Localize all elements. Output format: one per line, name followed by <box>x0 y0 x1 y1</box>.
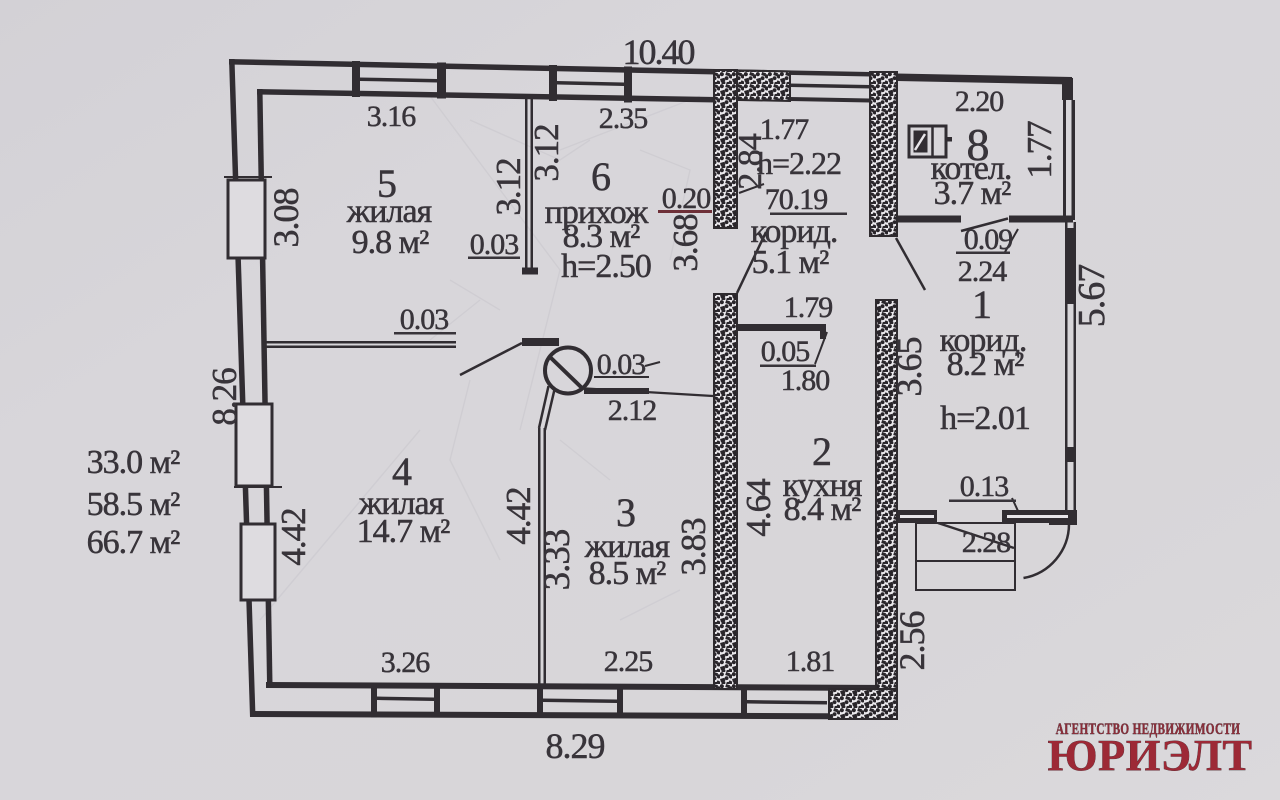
svg-text:58.5 м²: 58.5 м² <box>87 486 181 523</box>
svg-text:0.13: 0.13 <box>960 470 1009 503</box>
svg-text:4.42: 4.42 <box>274 508 313 565</box>
svg-text:3.16: 3.16 <box>367 100 417 133</box>
svg-text:8.5 м²: 8.5 м² <box>589 555 667 592</box>
svg-text:8.29: 8.29 <box>546 726 605 766</box>
svg-text:1.81: 1.81 <box>786 645 835 678</box>
svg-text:1.77: 1.77 <box>760 113 810 146</box>
svg-text:5.67: 5.67 <box>1071 265 1113 328</box>
svg-text:3.33: 3.33 <box>537 529 578 590</box>
svg-text:2.28: 2.28 <box>962 526 1011 559</box>
svg-text:3.7 м²: 3.7 м² <box>934 175 1012 212</box>
svg-text:3.68: 3.68 <box>666 214 705 272</box>
svg-text:0.20: 0.20 <box>662 182 711 215</box>
svg-text:2.25: 2.25 <box>604 645 653 678</box>
svg-text:0.03: 0.03 <box>470 228 519 261</box>
svg-text:2.12: 2.12 <box>608 394 657 427</box>
svg-text:2.56: 2.56 <box>892 612 932 671</box>
svg-text:0.03: 0.03 <box>597 348 646 381</box>
svg-text:3.12: 3.12 <box>489 158 528 215</box>
svg-text:1.77: 1.77 <box>1020 121 1059 179</box>
svg-text:70.19: 70.19 <box>765 183 828 216</box>
svg-text:5.1 м²: 5.1 м² <box>752 244 830 281</box>
svg-text:h=2.50: h=2.50 <box>561 248 651 285</box>
svg-text:1.79: 1.79 <box>784 291 833 324</box>
svg-text:0.09: 0.09 <box>964 223 1013 256</box>
svg-text:1: 1 <box>972 282 992 327</box>
svg-text:3.12: 3.12 <box>527 124 566 181</box>
svg-text:2.35: 2.35 <box>599 102 648 135</box>
svg-text:2.20: 2.20 <box>955 85 1004 118</box>
svg-text:0.03: 0.03 <box>400 303 449 336</box>
svg-text:4.42: 4.42 <box>499 487 538 544</box>
svg-text:8.26: 8.26 <box>205 368 244 426</box>
svg-text:4.64: 4.64 <box>739 479 778 537</box>
svg-text:8.2 м²: 8.2 м² <box>947 346 1025 383</box>
svg-text:h=2.01: h=2.01 <box>940 400 1030 437</box>
svg-text:10.40: 10.40 <box>623 32 695 72</box>
svg-text:8.4 м²: 8.4 м² <box>784 491 862 528</box>
svg-text:3.65: 3.65 <box>889 338 929 397</box>
svg-text:3.83: 3.83 <box>674 518 713 576</box>
svg-text:h=2.22: h=2.22 <box>757 145 841 181</box>
svg-text:3.26: 3.26 <box>381 646 431 679</box>
svg-text:14.7 м²: 14.7 м² <box>357 513 451 550</box>
svg-text:3.08: 3.08 <box>266 189 306 248</box>
svg-text:6: 6 <box>591 154 611 199</box>
svg-text:ЮРИЭЛТ: ЮРИЭЛТ <box>1047 730 1252 780</box>
svg-text:33.0 м²: 33.0 м² <box>87 444 181 481</box>
svg-text:66.7 м²: 66.7 м² <box>87 524 181 561</box>
svg-text:9.8 м²: 9.8 м² <box>352 224 430 261</box>
svg-text:1.80: 1.80 <box>781 364 830 397</box>
